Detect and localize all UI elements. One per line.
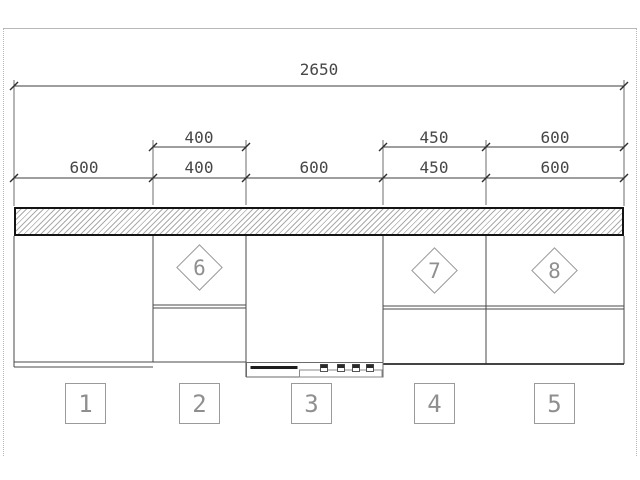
position-marker-3: 3 <box>291 383 332 424</box>
dim-row2-600: 600 <box>541 130 570 146</box>
dim-overall: 2650 <box>300 62 339 78</box>
dim-row3-600c: 600 <box>541 160 570 176</box>
position-marker-1: 1 <box>65 383 106 424</box>
unit-marker-label-6: 6 <box>180 257 220 279</box>
position-marker-4: 4 <box>414 383 455 424</box>
dim-row2-400: 400 <box>185 130 214 146</box>
dim-row3-400: 400 <box>185 160 214 176</box>
position-marker-2: 2 <box>179 383 220 424</box>
cabinet-outlines <box>14 236 624 377</box>
appliance-handle <box>251 366 298 369</box>
dim-row3-450: 450 <box>420 160 449 176</box>
dim-row2-450: 450 <box>420 130 449 146</box>
extension-lines <box>14 80 624 206</box>
unit-marker-label-8: 8 <box>535 260 575 282</box>
unit-marker-label-7: 7 <box>415 260 455 282</box>
position-marker-5: 5 <box>534 383 575 424</box>
dim-row3-600b: 600 <box>300 160 329 176</box>
cad-drawing-sheet: 2650 400 450 600 600 400 600 450 600 6 7… <box>0 0 640 480</box>
dim-row3-600a: 600 <box>70 160 99 176</box>
worktop-hatch-band <box>14 207 624 236</box>
appliance-control-panel <box>247 363 384 378</box>
